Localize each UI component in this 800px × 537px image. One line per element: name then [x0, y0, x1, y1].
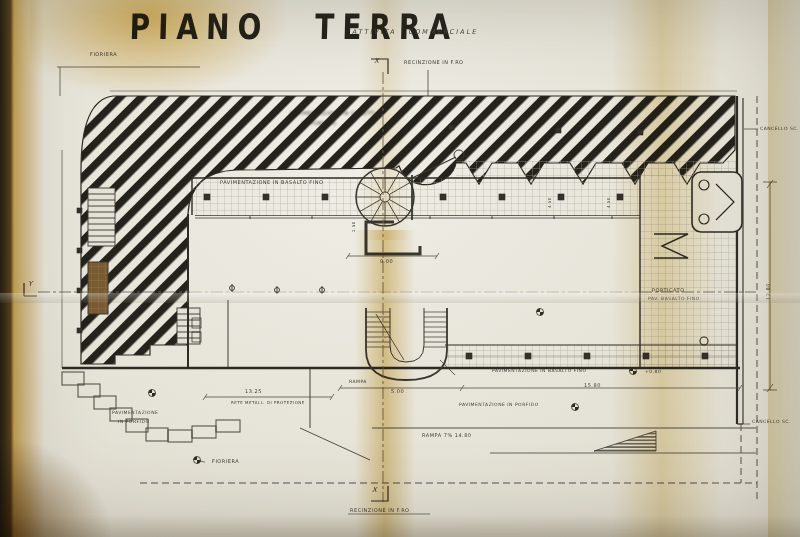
label-recinzione-top: RECINZIONE IN F.RO — [404, 60, 464, 65]
dim-15-80: 15.80 — [584, 383, 601, 388]
label-fioriera-top: FIORIERA — [90, 52, 117, 57]
dim-12-80: 12.80 — [766, 283, 771, 300]
hatch-note-line1: PAVIMENTAZIONE IN CUBETTI — [290, 111, 376, 116]
label-pav-porfido-left1: PAVIMENTAZIONE — [112, 411, 158, 416]
drawing-subtitle: ATTIVITA COMMERCIALE — [352, 29, 479, 36]
dim-9-00: 9.00 — [380, 259, 393, 264]
label-rete: RETE METALL. DI PROTEZIONE — [231, 401, 305, 405]
label-cancello-bottom: CANCELLO SC. — [752, 420, 791, 425]
label-pav-porfido-left2: IN PORFIDO — [118, 420, 149, 425]
label-pav-basalto-bottom: PAVIMENTAZIONE IN BASALTO FINO — [492, 369, 587, 374]
section-marker-y-left: Y — [28, 281, 33, 288]
scanned-plan-photo: PIANO TERRAATTIVITA COMMERCIALEFIORIERAX… — [0, 0, 800, 537]
dim-4-50-a: 4.50 — [548, 197, 552, 208]
label-porticato-pav: PAV. BASALTO FINO — [648, 297, 700, 302]
dim-4-50-b: 4.50 — [607, 197, 611, 208]
label-cancello-top: CANCELLO SC. — [760, 127, 799, 132]
label-fioriera-bottom: FIORIERA — [212, 459, 239, 464]
label-porticato: PORTICATO — [652, 288, 685, 293]
dim-13-25: 13.25 — [245, 389, 262, 394]
label-pav-porfido-bottom: PAVIMENTAZIONE IN PORFIDO — [459, 403, 539, 408]
section-marker-x-top: X — [374, 58, 379, 65]
section-marker-x-bottom: X — [372, 487, 377, 494]
hatch-note-line2: DI PORFIDO — [302, 121, 336, 126]
dim-2-50: 2.50 — [352, 221, 356, 232]
label-pav-basalto-top: PAVIMENTAZIONE IN BASALTO FINO — [220, 180, 323, 185]
label-rampa-small: RAMPA — [349, 380, 367, 385]
label-rampa-main: RAMPA 7% 14.80 — [422, 433, 472, 438]
plan-labels: PIANO TERRAATTIVITA COMMERCIALEFIORIERAX… — [0, 0, 800, 537]
level-plus-080: +0.80 — [645, 370, 661, 375]
dim-5-00: 5.00 — [391, 389, 404, 394]
label-recinzione-bottom: RECINZIONE IN F.RO — [350, 508, 410, 513]
